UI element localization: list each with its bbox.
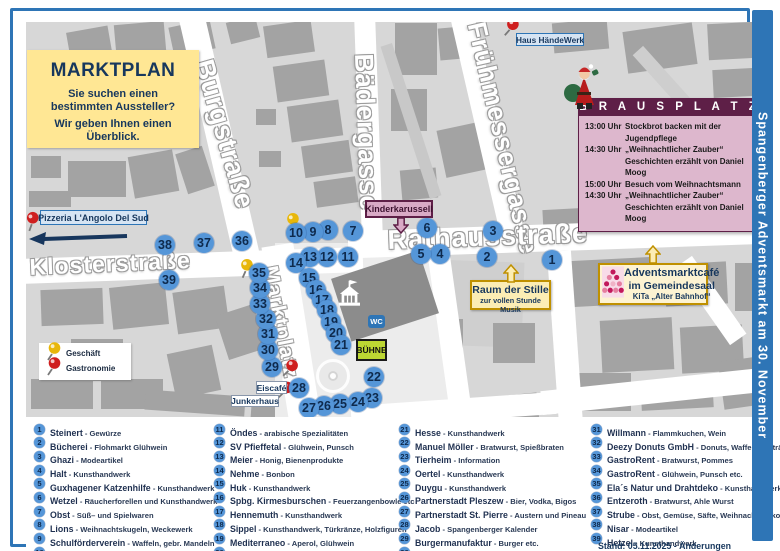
kinderkarussell-label: Kinderkarussell (365, 200, 433, 218)
vendor-number: 9 (34, 533, 45, 544)
building (707, 22, 757, 60)
map-marker-35[interactable]: 35 (249, 263, 269, 283)
map-marker-2[interactable]: 2 (477, 247, 497, 267)
vendor-row-9: 9Schulförderverein - Waffeln, gebr. Mand… (34, 533, 217, 547)
schedule-row: Geschichten erzählt von Daniel Moog (585, 202, 756, 225)
vendor-row-21: 21Hesse - Kunsthandwerk (399, 423, 586, 437)
key-geschaeft: Geschäft (66, 349, 100, 358)
vendor-number: 14 (214, 465, 225, 476)
haus-haendewerk-label: Haus HändeWerk (516, 33, 584, 46)
vendor-column-2: 11Öndes - arabische Spezialitäten12SV Pf… (214, 423, 415, 551)
building (109, 282, 169, 330)
vendor-number: 16 (214, 492, 225, 503)
map-marker-37[interactable]: 37 (194, 233, 214, 253)
vendor-number: 35 (591, 478, 602, 489)
key-gastronomie: Gastronomie (66, 364, 115, 373)
pizzeria-label: Pizzeria L'Angolo Del Sud (40, 210, 147, 225)
map-marker-29[interactable]: 29 (262, 357, 282, 377)
vendor-number: 22 (399, 437, 410, 448)
map-frame: BurgstraßeBädergasseFrühmessergasseRatha… (10, 8, 750, 547)
building (128, 149, 180, 198)
schedule-row: 13:00 UhrStockbrot backen mit der (585, 121, 756, 133)
arrow-down-icon (393, 217, 409, 239)
vendor-number: 5 (34, 478, 45, 489)
vendor-row-20: 20Apolle - thailändische Spezialitäten (214, 546, 415, 551)
vendor-row-29: 29Burgermanufaktur - Burger etc. (399, 533, 586, 547)
building (301, 140, 353, 178)
map-marker-24[interactable]: 24 (348, 392, 368, 412)
vendor-row-1: 1Steinert - Gewürze (34, 423, 217, 437)
vendor-number: 32 (591, 437, 602, 448)
schedule-row: Jugendpflege (585, 133, 756, 145)
building (68, 161, 126, 197)
vendor-row-13: 13Meier - Honig, Bienenprodukte (214, 450, 415, 464)
vendor-number: 17 (214, 506, 225, 517)
christmas-tree-icon (602, 266, 624, 303)
building (493, 323, 535, 363)
vendor-number: 25 (399, 478, 410, 489)
brausplatz-program: B R A U S P L A T Z 13:00 UhrStockbrot b… (578, 98, 760, 232)
stand-note: Stand: 05.11.2025 - Änderungen vorbehalt… (598, 541, 760, 551)
marktplan-title-box: MARKTPLAN Sie suchen einen bestimmten Au… (27, 50, 199, 148)
vendor-number: 20 (214, 547, 225, 551)
vendor-row-25: 25Duygu - Kunsthandwerk (399, 478, 586, 492)
eiscafe-label: Eiscafé (256, 381, 287, 394)
brausplatz-title: B R A U S P L A T Z (578, 98, 760, 116)
map-marker-21[interactable]: 21 (331, 335, 351, 355)
building (29, 191, 71, 207)
vendor-number: 24 (399, 465, 410, 476)
map-marker-3[interactable]: 3 (483, 221, 503, 241)
building (600, 317, 675, 373)
vendor-row-16: 16Spbg. Kirmesburschen - Feuerzangenbowl… (214, 491, 415, 505)
vendor-column-3: 21Hesse - Kunsthandwerk22Manuel Möller -… (399, 423, 586, 551)
vendor-row-26: 26Partnerstadt Pleszew - Bier, Vodka, Bi… (399, 491, 586, 505)
map-marker-38[interactable]: 38 (155, 235, 175, 255)
map-marker-27[interactable]: 27 (299, 398, 319, 417)
vendor-number: 6 (34, 492, 45, 503)
building (256, 109, 276, 125)
vendor-number: 1 (34, 424, 45, 435)
wc-sign: WC (368, 315, 385, 328)
building (226, 22, 260, 44)
schedule-row: 15:00 UhrBesuch vom Weihnachtsmann (585, 179, 756, 191)
vendor-number: 26 (399, 492, 410, 503)
santa-icon (563, 61, 605, 116)
title-line1: Sie suchen einen bestimmten Aussteller? (37, 88, 189, 114)
building (259, 151, 281, 167)
page-title: MARKTPLAN (27, 60, 199, 82)
vendor-number: 19 (214, 533, 225, 544)
vendor-number: 23 (399, 451, 410, 462)
vendor-number: 37 (591, 506, 602, 517)
vendor-number: 15 (214, 478, 225, 489)
vendor-row-8: 8Lions - Weihnachtskugeln, Weckewerk (34, 519, 217, 533)
church-icon (338, 279, 361, 312)
title-line2: Wir geben Ihnen einen Überblick. (37, 118, 189, 144)
arrow-up-icon (503, 264, 519, 288)
map-marker-28[interactable]: 28 (289, 378, 309, 398)
vendor-row-18: 18Sippel - Kunsthandwerk, Türkränze, Hol… (214, 519, 415, 533)
vendor-number: 38 (591, 519, 602, 530)
building (40, 288, 103, 326)
red-pin-icon (45, 356, 61, 381)
adventsmarktcafe-label: Adventsmarktcafé im Gemeindesaal KiTa „A… (598, 263, 708, 305)
arrow-up-icon (645, 245, 661, 269)
building (287, 100, 344, 143)
vendor-row-22: 22Manuel Möller - Bratwurst, Spießbraten (399, 437, 586, 451)
vendor-number: 11 (214, 424, 225, 435)
fountain (316, 359, 350, 393)
map-marker-12[interactable]: 12 (317, 247, 337, 267)
vendor-number: 30 (399, 547, 410, 551)
building (712, 68, 753, 98)
map-marker-36[interactable]: 36 (232, 231, 252, 251)
vendor-number: 31 (591, 424, 602, 435)
vendor-column-1: 1Steinert - Gewürze2Bücherei - Flohmarkt… (34, 423, 217, 551)
vendor-number: 18 (214, 519, 225, 530)
vendor-number: 33 (591, 451, 602, 462)
building (31, 156, 61, 178)
vendor-row-27: 27Partnerstadt St. Pierre - Austern und … (399, 505, 586, 519)
map-marker-11[interactable]: 11 (338, 247, 358, 267)
marktplan-poster: BurgstraßeBädergasseFrühmessergasseRatha… (0, 0, 780, 551)
vendor-row-2: 2Bücherei - Flohmarkt Glühwein (34, 437, 217, 451)
map-key: Geschäft Gastronomie (39, 343, 131, 380)
street-label-bädergasse: Bädergasse (348, 53, 384, 211)
vendor-number: 7 (34, 506, 45, 517)
map-area: BurgstraßeBädergasseFrühmessergasseRatha… (26, 22, 760, 417)
vendor-number: 29 (399, 533, 410, 544)
vendor-number: 28 (399, 519, 410, 530)
building (273, 60, 330, 103)
map-marker-7[interactable]: 7 (343, 221, 363, 241)
schedule-row: 14:30 Uhr„Weihnachtlicher Zauber“ (585, 190, 756, 202)
direction-arrow-west (29, 231, 129, 250)
vendor-row-10: 10Lisa Marie - Dekoartikel und mehr (Ges… (34, 546, 217, 551)
vendor-number: 12 (214, 437, 225, 448)
vendor-number: 2 (34, 437, 45, 448)
vendor-number: 8 (34, 519, 45, 530)
vendor-row-6: 6Wetzel - Räucherforellen und Kunsthandw… (34, 491, 217, 505)
vendor-list: 1Steinert - Gewürze2Bücherei - Flohmarkt… (26, 417, 760, 551)
map-marker-6[interactable]: 6 (417, 218, 437, 238)
vendor-row-12: 12SV Pfieffetal - Glühwein, Punsch (214, 437, 415, 451)
vendor-number: 21 (399, 424, 410, 435)
map-marker-4[interactable]: 4 (430, 244, 450, 264)
map-marker-5[interactable]: 5 (411, 244, 431, 264)
brausplatz-schedule: 13:00 UhrStockbrot backen mit derJugendp… (578, 116, 760, 232)
vendor-number: 36 (591, 492, 602, 503)
schedule-row: Geschichten erzählt von Daniel Moog (585, 156, 756, 179)
vendor-number: 13 (214, 451, 225, 462)
building (395, 23, 437, 75)
vendor-row-5: 5Guxhagener Katzenhilfe - Kunsthandwerk (34, 478, 217, 492)
vendor-number: 27 (399, 506, 410, 517)
vendor-number: 4 (34, 465, 45, 476)
junkerhaus-label: Junkerhaus (231, 395, 279, 407)
schedule-row: 14:30 Uhr„Weihnachtlicher Zauber“ (585, 144, 756, 156)
building (31, 379, 93, 409)
map-marker-39[interactable]: 39 (159, 270, 179, 290)
vendor-row-15: 15Huk - Kunsthandwerk (214, 478, 415, 492)
vendor-number: 34 (591, 465, 602, 476)
vendor-row-4: 4Halt - Kunsthandwerk (34, 464, 217, 478)
vendor-row-24: 24Oertel - Kunsthandwerk (399, 464, 586, 478)
building (263, 22, 315, 58)
event-banner: Spangenberger Adventsmarkt am 30. Novemb… (752, 10, 773, 541)
map-marker-1[interactable]: 1 (542, 250, 562, 270)
vendor-number: 3 (34, 451, 45, 462)
map-marker-22[interactable]: 22 (364, 367, 384, 387)
vendor-row-11: 11Öndes - arabische Spezialitäten (214, 423, 415, 437)
vendor-number: 10 (34, 547, 45, 551)
stage-label: BÜHNE (356, 339, 387, 361)
map-marker-10[interactable]: 10 (286, 223, 306, 243)
vendor-row-30: 30Combibo - Cocktails (399, 546, 586, 551)
map-marker-9[interactable]: 9 (303, 222, 323, 242)
